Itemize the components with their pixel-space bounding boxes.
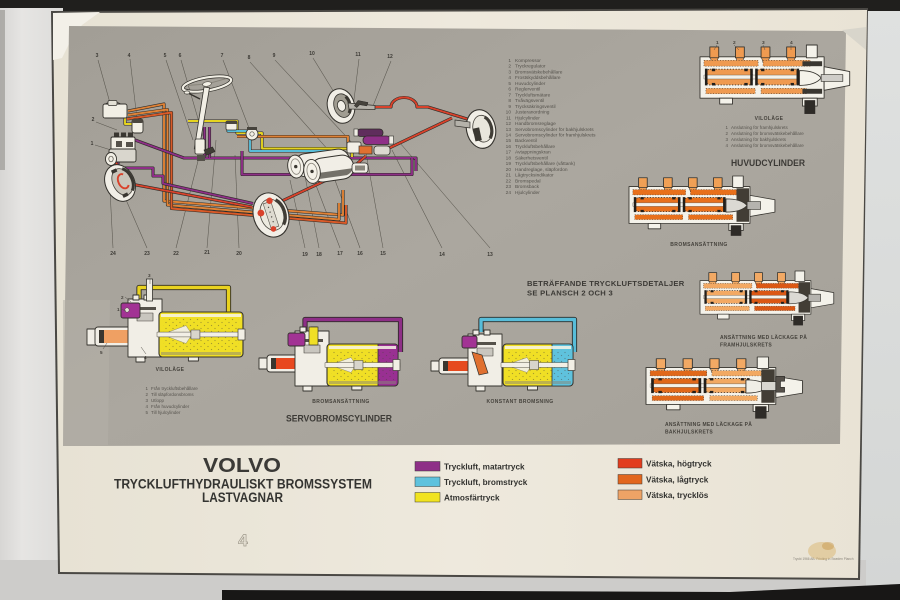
svg-text:11: 11 — [506, 115, 511, 121]
svg-text:VILOLÄGE: VILOLÄGE — [156, 366, 185, 373]
svg-text:2: 2 — [92, 117, 95, 123]
svg-text:Trycksäkringsventil: Trycksäkringsventil — [515, 104, 556, 110]
svg-text:8: 8 — [248, 55, 251, 61]
svg-text:FRAMHJULSKRETS: FRAMHJULSKRETS — [720, 343, 772, 349]
svg-text:5: 5 — [164, 53, 167, 59]
svg-text:Tryckluftsmätare: Tryckluftsmätare — [515, 92, 551, 98]
svg-text:Vätska, högtryck: Vätska, högtryck — [646, 460, 712, 469]
svg-text:14: 14 — [439, 252, 445, 258]
svg-text:Till släpfordonsbroms: Till släpfordonsbroms — [151, 392, 194, 397]
svg-text:Bromsvätskebehållare: Bromsvätskebehållare — [515, 69, 563, 76]
svg-text:24: 24 — [506, 190, 512, 196]
svg-text:Säkerhetsventil: Säkerhetsventil — [515, 155, 548, 161]
svg-text:22: 22 — [506, 178, 512, 184]
svg-text:Vätska, lågtryck: Vätska, lågtryck — [646, 475, 709, 485]
svg-text:LASTVAGNAR: LASTVAGNAR — [202, 490, 283, 505]
svg-text:22: 22 — [173, 251, 179, 257]
svg-text:1: 1 — [117, 307, 120, 312]
svg-text:20: 20 — [506, 167, 512, 173]
svg-text:Bromspedal: Bromspedal — [515, 178, 541, 184]
svg-text:6: 6 — [508, 87, 511, 93]
svg-text:1: 1 — [716, 40, 719, 46]
svg-text:VILOLÄGE: VILOLÄGE — [755, 115, 784, 122]
svg-text:4: 4 — [790, 40, 793, 46]
svg-text:4: 4 — [144, 355, 147, 360]
svg-text:18: 18 — [316, 252, 322, 258]
svg-text:Anslutning för framhjulskrets: Anslutning för framhjulskrets — [731, 125, 789, 130]
svg-text:Anslutning för bromsvätskebehå: Anslutning för bromsvätskebehållare — [731, 142, 804, 148]
svg-text:Tryckregulator: Tryckregulator — [515, 64, 546, 70]
svg-text:16: 16 — [506, 144, 512, 150]
svg-text:Justeranordning: Justeranordning — [515, 110, 550, 116]
svg-text:17: 17 — [337, 251, 343, 257]
svg-text:Anslutning för bromsvätskebehå: Anslutning för bromsvätskebehållare — [731, 130, 804, 136]
svg-text:13: 13 — [506, 127, 512, 133]
svg-text:23: 23 — [144, 251, 150, 257]
svg-text:Huvudcylinder: Huvudcylinder — [515, 81, 546, 87]
svg-text:Frostskyddsbehållare: Frostskyddsbehållare — [515, 74, 561, 81]
svg-text:4: 4 — [128, 53, 131, 59]
svg-text:5: 5 — [508, 81, 511, 87]
svg-text:15: 15 — [506, 138, 512, 144]
svg-text:BROMSANSÄTTNING: BROMSANSÄTTNING — [670, 241, 727, 248]
svg-text:8: 8 — [508, 98, 511, 104]
svg-text:Anslutning för bakhjulskrets: Anslutning för bakhjulskrets — [731, 137, 787, 142]
svg-text:24: 24 — [110, 251, 116, 257]
svg-text:VOLVO: VOLVO — [203, 455, 281, 477]
svg-text:Tvåvägsventil: Tvåvägsventil — [515, 97, 544, 104]
svg-text:Vätska, trycklös: Vätska, trycklös — [646, 491, 709, 500]
svg-text:7: 7 — [221, 53, 224, 59]
svg-text:3: 3 — [762, 40, 765, 46]
svg-text:17: 17 — [506, 150, 512, 156]
svg-text:BETRÄFFANDE TRYCKLUFTSDETALJER: BETRÄFFANDE TRYCKLUFTSDETALJER — [527, 279, 685, 288]
svg-text:1: 1 — [508, 58, 511, 64]
svg-text:10: 10 — [506, 110, 512, 116]
svg-text:1: 1 — [91, 141, 94, 147]
svg-text:ANSÄTTNING MED LÄCKAGE PÅ: ANSÄTTNING MED LÄCKAGE PÅ — [720, 334, 807, 341]
svg-text:3: 3 — [508, 70, 511, 76]
svg-text:Utlopp: Utlopp — [151, 398, 165, 403]
svg-text:20: 20 — [236, 251, 242, 257]
svg-text:SERVOBROMSCYLINDER: SERVOBROMSCYLINDER — [286, 414, 392, 425]
svg-text:12: 12 — [506, 121, 512, 127]
svg-text:Bromsback: Bromsback — [515, 184, 540, 190]
svg-text:9: 9 — [273, 53, 276, 59]
svg-text:21: 21 — [506, 173, 512, 179]
svg-text:KONSTANT BROMSNING: KONSTANT BROMSNING — [486, 399, 553, 405]
svg-text:BROMSANSÄTTNING: BROMSANSÄTTNING — [312, 398, 369, 405]
svg-text:HUVUDCYLINDER: HUVUDCYLINDER — [731, 158, 805, 169]
svg-text:Tryckluftsbehållare (våttank): Tryckluftsbehållare (våttank) — [515, 160, 575, 167]
svg-text:11: 11 — [355, 52, 361, 58]
svg-text:Tryckluft, matartryck: Tryckluft, matartryck — [444, 463, 525, 472]
svg-text:Handbromsreglage: Handbromsreglage — [515, 121, 556, 127]
svg-text:6: 6 — [179, 53, 182, 59]
svg-text:4: 4 — [238, 531, 248, 550]
svg-text:15: 15 — [380, 251, 386, 257]
svg-text:2: 2 — [508, 64, 511, 70]
svg-text:Handreglage, släpfordon: Handreglage, släpfordon — [515, 167, 568, 173]
svg-text:Hjulcylinder: Hjulcylinder — [515, 115, 540, 121]
svg-text:3: 3 — [96, 53, 99, 59]
svg-text:19: 19 — [506, 161, 512, 167]
svg-text:Servobromscylinder för bakhjul: Servobromscylinder för bakhjulskrets — [515, 127, 594, 133]
svg-text:Avtappningskran: Avtappningskran — [515, 150, 551, 156]
svg-text:Backventil: Backventil — [515, 138, 537, 144]
svg-text:7: 7 — [508, 92, 511, 98]
svg-text:Kompressor: Kompressor — [515, 58, 541, 64]
svg-text:SE PLANSCH 2 OCH 3: SE PLANSCH 2 OCH 3 — [527, 289, 613, 298]
svg-text:Lågtrycksindikator: Lågtrycksindikator — [515, 172, 554, 179]
svg-text:13: 13 — [487, 252, 493, 258]
svg-text:9: 9 — [508, 104, 511, 110]
svg-text:19: 19 — [302, 252, 308, 258]
svg-text:Atmosfärtryck: Atmosfärtryck — [444, 494, 500, 503]
svg-text:12: 12 — [387, 54, 393, 60]
svg-text:10: 10 — [309, 51, 315, 57]
svg-text:21: 21 — [204, 250, 210, 256]
svg-text:Hjulcylinder: Hjulcylinder — [515, 190, 540, 196]
svg-text:23: 23 — [506, 184, 512, 190]
svg-text:5: 5 — [100, 350, 103, 355]
svg-text:16: 16 — [357, 251, 363, 257]
svg-text:Till hjulcylinder: Till hjulcylinder — [151, 410, 181, 415]
svg-text:Servobromscylinder för framhju: Servobromscylinder för framhjulskrets — [515, 133, 596, 139]
svg-text:Reglerventil: Reglerventil — [515, 87, 540, 93]
svg-text:Tryckluftsbehållare: Tryckluftsbehållare — [515, 143, 555, 150]
svg-text:18: 18 — [506, 155, 512, 161]
svg-text:BAKHJULSKRETS: BAKHJULSKRETS — [665, 430, 713, 436]
svg-text:3: 3 — [148, 273, 151, 278]
svg-text:4: 4 — [508, 75, 511, 81]
svg-text:2: 2 — [733, 40, 736, 46]
svg-text:ANSÄTTNING MED LÄCKAGE PÅ: ANSÄTTNING MED LÄCKAGE PÅ — [665, 421, 752, 428]
svg-text:Tryckluft, bromstryck: Tryckluft, bromstryck — [444, 478, 528, 487]
svg-text:14: 14 — [506, 133, 512, 139]
svg-text:Från huvudcylinder: Från huvudcylinder — [151, 403, 190, 409]
svg-text:Från tryckluftsbehållare: Från tryckluftsbehållare — [151, 385, 198, 391]
svg-text:2: 2 — [121, 295, 124, 300]
